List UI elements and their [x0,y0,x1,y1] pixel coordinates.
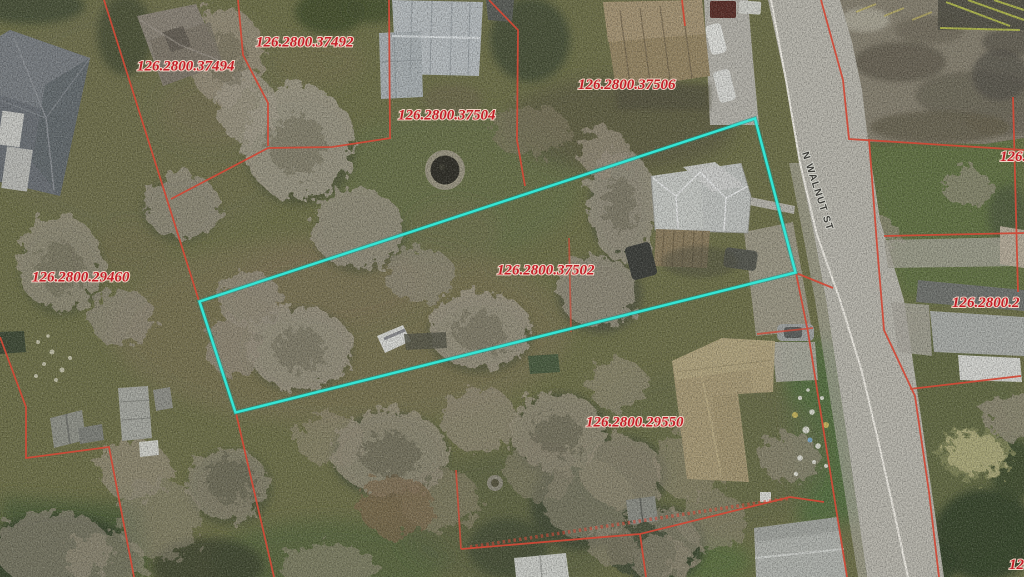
svg-text:126.: 126. [1009,557,1024,573]
svg-text:126.2800.37494: 126.2800.37494 [137,59,235,75]
svg-text:126.2: 126.2 [1000,149,1024,165]
svg-text:126.2800.29460: 126.2800.29460 [32,270,130,286]
svg-text:126.2800.37492: 126.2800.37492 [256,35,354,51]
svg-text:126.2800.37504: 126.2800.37504 [398,108,496,124]
svg-text:126.2800.2: 126.2800.2 [952,295,1020,311]
svg-text:126.2800.37506: 126.2800.37506 [578,77,676,93]
svg-text:126.2800.37502: 126.2800.37502 [497,263,595,279]
svg-text:126.2800.29550: 126.2800.29550 [586,415,684,431]
